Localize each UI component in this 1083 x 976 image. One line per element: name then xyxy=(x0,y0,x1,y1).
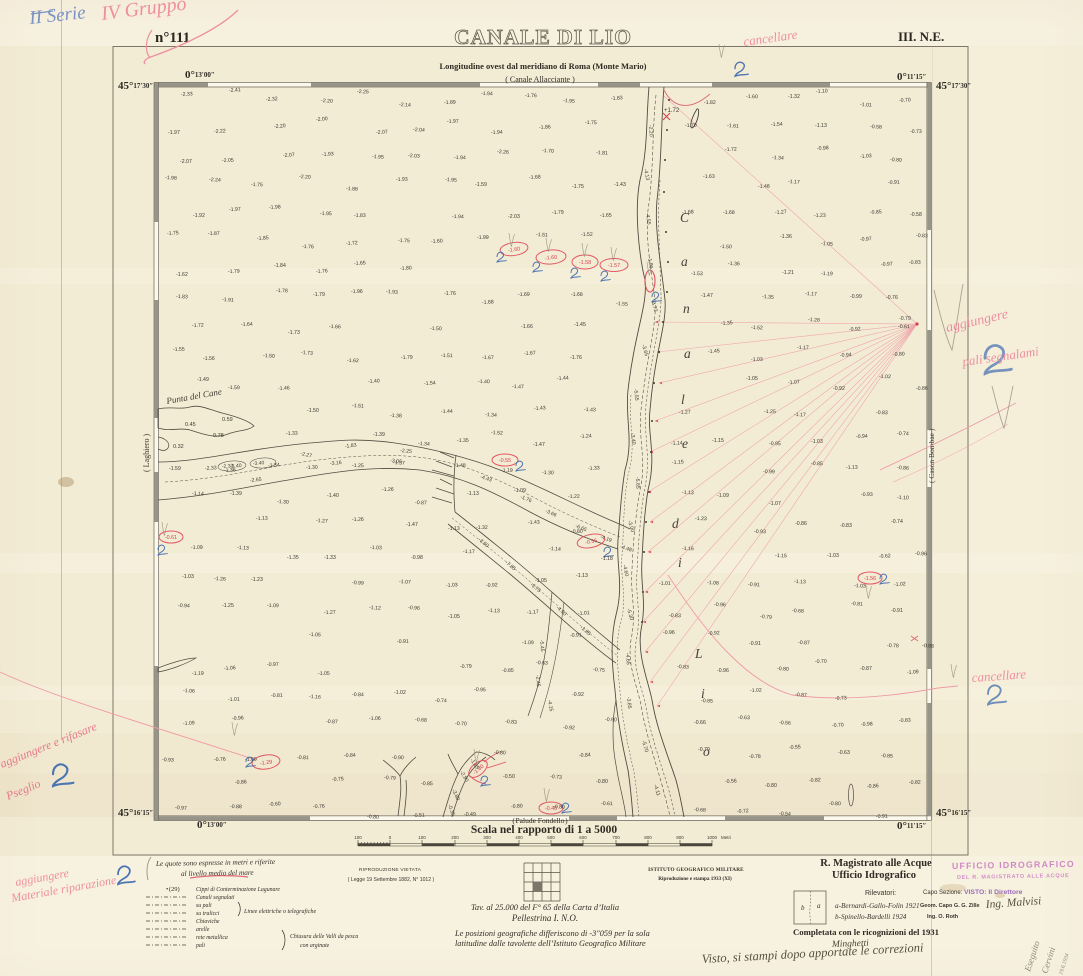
svg-text:-0.80: -0.80 xyxy=(893,351,905,358)
svg-text:-1.29: -1.29 xyxy=(260,759,273,767)
svg-text:-0.81: -0.81 xyxy=(297,755,309,761)
svg-text:-1.95: -1.95 xyxy=(445,177,457,184)
svg-text:-1.05: -1.05 xyxy=(746,376,758,382)
svg-text:-1.02: -1.02 xyxy=(394,690,406,696)
svg-text:0°11′15″: 0°11′15″ xyxy=(897,820,926,832)
svg-text:-1.25: -1.25 xyxy=(352,463,364,469)
svg-text:-1.83: -1.83 xyxy=(176,294,188,300)
svg-text:-0.35: -0.35 xyxy=(446,804,456,817)
svg-text:III. N.E.: III. N.E. xyxy=(898,29,944,44)
svg-text:-2.65: -2.65 xyxy=(250,477,263,484)
svg-text:Longitudine ovest dal meridian: Longitudine ovest dal meridiano di Roma … xyxy=(439,61,646,71)
svg-text:-1.02: -1.02 xyxy=(894,581,906,588)
svg-text:-1.19: -1.19 xyxy=(821,271,833,277)
svg-text:-1.83: -1.83 xyxy=(611,95,623,102)
svg-text:-0.76: -0.76 xyxy=(214,757,226,763)
svg-text:-2.26: -2.26 xyxy=(497,149,509,156)
svg-text:-0.79: -0.79 xyxy=(760,614,772,621)
svg-text:-1.64: -1.64 xyxy=(241,322,253,328)
svg-text:-1.43: -1.43 xyxy=(534,405,546,412)
svg-text:-1.62: -1.62 xyxy=(347,358,359,364)
svg-text:-0.87: -0.87 xyxy=(326,719,338,725)
svg-text:-1.33: -1.33 xyxy=(588,465,600,472)
svg-text:-0.83: -0.83 xyxy=(840,523,852,529)
svg-text:400: 400 xyxy=(515,835,523,840)
svg-text:-0.78: -0.78 xyxy=(887,643,899,649)
svg-text:-1.79: -1.79 xyxy=(313,292,325,298)
svg-text:-1.32: -1.32 xyxy=(788,94,800,100)
svg-text:-0.90: -0.90 xyxy=(392,755,404,761)
svg-text:Cippi di Conterminazione Lagun: Cippi di Conterminazione Lagunare xyxy=(196,887,280,893)
svg-text:-2.14: -2.14 xyxy=(399,102,411,109)
svg-text:-0.97: -0.97 xyxy=(881,261,893,268)
svg-text:-0.85: -0.85 xyxy=(502,668,514,674)
svg-text:-0.82: -0.82 xyxy=(809,777,821,784)
svg-text:-0.96: -0.96 xyxy=(714,602,726,608)
svg-text:-1.89: -1.89 xyxy=(444,100,456,106)
svg-text:-1.47: -1.47 xyxy=(701,293,713,299)
svg-text:0.59: 0.59 xyxy=(222,417,233,423)
svg-text:-0.54: -0.54 xyxy=(779,811,791,818)
svg-text:0°13′00″: 0°13′00″ xyxy=(197,819,227,831)
svg-text:-2.33: -2.33 xyxy=(205,465,217,472)
svg-text:-1.17: -1.17 xyxy=(797,345,809,351)
svg-text:-5.70: -5.70 xyxy=(640,740,649,753)
svg-text:-1.03: -1.03 xyxy=(860,153,872,160)
svg-text:-1.34: -1.34 xyxy=(772,155,784,162)
svg-text:-2.03: -2.03 xyxy=(508,214,520,220)
svg-text:-1.44: -1.44 xyxy=(441,409,453,415)
svg-text:-1.09: -1.09 xyxy=(267,603,279,609)
svg-text:-0.79: -0.79 xyxy=(698,747,710,753)
svg-text:a: a xyxy=(817,902,821,910)
svg-text:-1.33: -1.33 xyxy=(286,431,298,437)
svg-text:-0.79: -0.79 xyxy=(460,664,472,670)
svg-text:-1.13: -1.13 xyxy=(448,526,460,532)
svg-text:-1.80: -1.80 xyxy=(646,256,654,269)
svg-text:-1.82: -1.82 xyxy=(704,100,716,106)
svg-text:-5.45: -5.45 xyxy=(538,640,545,652)
svg-text:e: e xyxy=(682,436,688,451)
svg-text:Ing. O. Roth: Ing. O. Roth xyxy=(927,914,959,920)
svg-text:Chiusura delle Valli da pesca: Chiusura delle Valli da pesca xyxy=(290,934,358,940)
svg-text:Eseguito: Eseguito xyxy=(1022,939,1042,973)
svg-text:-1.07: -1.07 xyxy=(788,379,800,386)
svg-text:-1.43: -1.43 xyxy=(614,182,626,188)
svg-text:-3.66: -3.66 xyxy=(544,508,557,518)
svg-text:-2.24: -2.24 xyxy=(209,177,221,184)
svg-text:200: 200 xyxy=(451,835,459,840)
svg-text:-1.05: -1.05 xyxy=(535,578,547,584)
svg-text:-3.85: -3.85 xyxy=(625,697,632,710)
svg-text:-1.66: -1.66 xyxy=(521,324,533,330)
svg-text:-1.36: -1.36 xyxy=(728,261,740,267)
svg-text:latitudine dalle tavolette del: latitudine dalle tavolette dell’Istituto… xyxy=(455,939,646,948)
svg-text:-1.06: -1.06 xyxy=(183,688,195,695)
svg-text:( Laghiero ): ( Laghiero ) xyxy=(142,433,151,472)
svg-text:-2.27: -2.27 xyxy=(300,451,313,459)
svg-text:-1.13: -1.13 xyxy=(237,545,249,552)
svg-text:-0.92: -0.92 xyxy=(708,630,720,637)
svg-text:-4.55: -4.55 xyxy=(644,213,651,226)
svg-text:-0.96: -0.96 xyxy=(408,605,420,612)
svg-text:-0.81: -0.81 xyxy=(851,601,863,608)
svg-text:1000: 1000 xyxy=(707,835,718,840)
svg-text:-1.27: -1.27 xyxy=(679,409,691,416)
svg-text:-1.08: -1.08 xyxy=(707,580,719,587)
svg-text:-1.94: -1.94 xyxy=(452,214,464,220)
svg-text:-1.17: -1.17 xyxy=(794,412,806,418)
svg-text:-0.90: -0.90 xyxy=(605,717,617,723)
svg-text:-1.88: -1.88 xyxy=(346,186,358,193)
svg-text:-1.13: -1.13 xyxy=(846,465,858,471)
svg-text:-0.85: -0.85 xyxy=(701,698,713,705)
svg-text:-1.23: -1.23 xyxy=(695,516,707,522)
svg-text:-1.97: -1.97 xyxy=(168,130,180,136)
svg-text:-0.84: -0.84 xyxy=(344,753,356,759)
svg-text:-0.88: -0.88 xyxy=(230,804,242,810)
svg-text:-1.95: -1.95 xyxy=(372,154,384,161)
svg-text:-0.83: -0.83 xyxy=(876,410,888,416)
svg-text:b-Spinello-Bardelli 1924: b-Spinello-Bardelli 1924 xyxy=(835,913,907,921)
svg-text:-0.63: -0.63 xyxy=(738,715,750,721)
svg-text:-1.15: -1.15 xyxy=(775,553,787,559)
svg-text:-1.63: -1.63 xyxy=(703,174,715,180)
svg-text:-0.79: -0.79 xyxy=(384,775,396,782)
svg-text:-1.67: -1.67 xyxy=(482,355,494,361)
svg-text:-0.94: -0.94 xyxy=(840,352,852,359)
svg-text:0°11′15″: 0°11′15″ xyxy=(897,71,926,83)
svg-text:-2.20: -2.20 xyxy=(321,98,333,105)
svg-text:-2.07: -2.07 xyxy=(376,129,388,136)
svg-text:rete metallica: rete metallica xyxy=(196,935,228,941)
svg-text:-0.87: -0.87 xyxy=(795,692,807,699)
svg-text:-1.75: -1.75 xyxy=(167,230,179,237)
svg-text:-0.83: -0.83 xyxy=(677,664,689,671)
svg-text:-1.49: -1.49 xyxy=(197,377,209,383)
svg-text:-0.86: -0.86 xyxy=(235,779,247,786)
svg-text:-4.13: -4.13 xyxy=(642,168,650,181)
svg-text:-1.14: -1.14 xyxy=(192,491,204,497)
svg-text:-1.93: -1.93 xyxy=(386,289,398,296)
svg-text:-1.10: -1.10 xyxy=(897,495,909,501)
svg-text:-4.65: -4.65 xyxy=(624,653,631,665)
svg-text:-0.68: -0.68 xyxy=(792,608,804,615)
svg-text:al livello medio del mare: al livello medio del mare xyxy=(181,868,255,878)
svg-text:-0.92: -0.92 xyxy=(563,725,575,731)
svg-text:-1.22: -1.22 xyxy=(568,494,580,500)
svg-text:-0.93: -0.93 xyxy=(754,529,766,535)
svg-text:-1.03: -1.03 xyxy=(827,553,839,559)
svg-text:-1.85: -1.85 xyxy=(257,235,269,242)
svg-text:-0.72: -0.72 xyxy=(737,808,749,815)
svg-text:-1.19: -1.19 xyxy=(192,671,204,677)
svg-text:-1.30: -1.30 xyxy=(277,499,289,506)
svg-text:-1.27: -1.27 xyxy=(316,518,328,525)
svg-text:-1.35: -1.35 xyxy=(457,438,469,444)
svg-text:-0.84: -0.84 xyxy=(352,692,364,698)
svg-text:IV Gruppo: IV Gruppo xyxy=(99,0,188,25)
svg-text:-1.70: -1.70 xyxy=(685,123,697,129)
svg-text:-0.81: -0.81 xyxy=(271,693,283,699)
svg-text:-1.68: -1.68 xyxy=(529,174,541,181)
svg-text:Ing. Malvisi: Ing. Malvisi xyxy=(984,895,1041,911)
svg-text:-1.45: -1.45 xyxy=(574,322,586,328)
svg-text:-0.83: -0.83 xyxy=(899,718,911,724)
svg-text:-0.50: -0.50 xyxy=(503,774,515,780)
svg-text:-1.10: -1.10 xyxy=(816,88,828,95)
svg-text:Scala nel rapporto di 1 a 5000: Scala nel rapporto di 1 a 5000 xyxy=(471,824,618,836)
svg-text:-1.47: -1.47 xyxy=(533,442,545,448)
svg-text:-1.84: -1.84 xyxy=(274,263,286,269)
svg-text:-1.14: -1.14 xyxy=(671,440,683,447)
svg-text:-0.92: -0.92 xyxy=(572,692,584,698)
svg-text:600: 600 xyxy=(579,835,587,840)
svg-text:-0.80: -0.80 xyxy=(890,157,902,164)
svg-text:-1.07: -1.07 xyxy=(399,579,411,586)
svg-text:-1.76: -1.76 xyxy=(316,268,328,275)
svg-text:+1.72: +1.72 xyxy=(664,108,680,114)
svg-text:-0.87: -0.87 xyxy=(415,500,427,506)
svg-text:-1.67: -1.67 xyxy=(524,350,536,357)
svg-text:-0.68: -0.68 xyxy=(415,717,427,724)
svg-text:-1.76: -1.76 xyxy=(444,291,456,297)
svg-text:-0.82: -0.82 xyxy=(909,780,921,786)
svg-text:L: L xyxy=(694,646,703,661)
svg-text:-2.80: -2.80 xyxy=(458,770,469,783)
svg-text:-1.24: -1.24 xyxy=(580,433,592,440)
svg-text:-0.99: -0.99 xyxy=(352,580,364,587)
svg-text:-1.51: -1.51 xyxy=(441,353,453,359)
svg-text:-0.73: -0.73 xyxy=(835,695,847,702)
svg-text:-1.54: -1.54 xyxy=(424,380,436,387)
svg-text:-1.15: -1.15 xyxy=(712,438,724,444)
svg-text:-0.80: -0.80 xyxy=(596,779,608,785)
svg-text:-1.16: -1.16 xyxy=(682,546,694,552)
svg-text:-1.86: -1.86 xyxy=(539,124,551,131)
svg-text:-1.50: -1.50 xyxy=(720,244,732,250)
svg-text:-0.91: -0.91 xyxy=(570,632,582,639)
svg-text:-1.03: -1.03 xyxy=(370,545,382,551)
svg-text:-0.96: -0.96 xyxy=(915,551,927,557)
svg-text:-0.85: -0.85 xyxy=(421,781,433,787)
svg-text:-0.66: -0.66 xyxy=(694,720,706,726)
svg-text:-0.98: -0.98 xyxy=(817,145,829,152)
svg-text:0.78: 0.78 xyxy=(213,433,224,439)
svg-text:Linee elettriche o telegrafich: Linee elettriche o telegrafiche xyxy=(243,908,316,915)
svg-text:-0.70: -0.70 xyxy=(899,97,911,104)
svg-text:Ufficio Idrografico: Ufficio Idrografico xyxy=(832,870,916,881)
svg-text:-1.03: -1.03 xyxy=(182,574,194,580)
svg-text:-1.94: -1.94 xyxy=(491,130,503,136)
svg-text:-1.95: -1.95 xyxy=(563,98,575,105)
svg-text:-0.76: -0.76 xyxy=(313,804,325,810)
svg-text:-2.45: -2.45 xyxy=(534,675,541,687)
svg-text:-0.60: -0.60 xyxy=(269,801,281,808)
svg-text:• (29): • (29) xyxy=(166,886,180,893)
svg-text:-3.60: -3.60 xyxy=(477,537,490,549)
svg-text:0.45: 0.45 xyxy=(185,422,196,428)
svg-text:-1.30: -1.30 xyxy=(542,470,554,476)
svg-text:-0.51: -0.51 xyxy=(413,813,425,819)
svg-text:-0.58: -0.58 xyxy=(870,124,882,131)
svg-text:-1.43: -1.43 xyxy=(528,520,540,526)
svg-text:-1.01: -1.01 xyxy=(578,610,590,617)
svg-text:-0.79: -0.79 xyxy=(899,316,911,322)
svg-text:-0.97: -0.97 xyxy=(267,662,279,668)
svg-text:-1.48: -1.48 xyxy=(454,463,466,469)
svg-text:-0.70: -0.70 xyxy=(832,722,844,729)
svg-text:-4.15: -4.15 xyxy=(546,699,554,712)
svg-text:cancellare: cancellare xyxy=(971,666,1027,685)
svg-text:-0.86: -0.86 xyxy=(795,521,807,527)
svg-text:-1.19: -1.19 xyxy=(501,468,513,474)
svg-text:-1.97: -1.97 xyxy=(447,119,459,125)
svg-text:-1.09: -1.09 xyxy=(907,669,919,676)
svg-text:a-Bernardi-Gallo-Folin 1921: a-Bernardi-Gallo-Folin 1921 xyxy=(835,902,920,910)
svg-text:-1.05: -1.05 xyxy=(821,241,833,248)
svg-text:-0.80: -0.80 xyxy=(511,803,523,810)
svg-text:-0.97: -0.97 xyxy=(175,805,187,812)
svg-text:-0.80: -0.80 xyxy=(777,666,789,673)
svg-text:-2.07: -2.07 xyxy=(180,159,192,165)
svg-text:-1.56: -1.56 xyxy=(203,356,215,362)
svg-text:-1.35: -1.35 xyxy=(762,294,774,301)
svg-text:-5.65: -5.65 xyxy=(634,477,640,489)
svg-text:-1.59: -1.59 xyxy=(169,466,181,472)
svg-text:-1.34: -1.34 xyxy=(485,412,497,419)
svg-text:-1.79: -1.79 xyxy=(552,210,564,216)
svg-text:-1.94: -1.94 xyxy=(454,155,466,161)
svg-text:-1.76: -1.76 xyxy=(302,244,314,250)
svg-text:Geom. Capo G. G. Zille: Geom. Capo G. G. Zille xyxy=(920,903,980,909)
svg-text:-4.72: -4.72 xyxy=(649,300,658,313)
svg-text:Chiaviche: Chiaviche xyxy=(196,919,220,925)
svg-text:-0.98: -0.98 xyxy=(861,721,873,728)
svg-text:-2.20: -2.20 xyxy=(299,174,311,181)
svg-text:-1.13: -1.13 xyxy=(576,573,588,579)
svg-text:-1.98: -1.98 xyxy=(269,204,281,211)
svg-text:-2.41: -2.41 xyxy=(229,87,241,94)
svg-text:-0.88: -0.88 xyxy=(922,643,934,650)
svg-text:-1.46: -1.46 xyxy=(278,385,290,392)
svg-text:-0.96: -0.96 xyxy=(663,630,675,636)
svg-text:-0.96: -0.96 xyxy=(717,668,729,674)
svg-text:-5.55: -5.55 xyxy=(632,389,639,402)
svg-text:-1.56: -1.56 xyxy=(864,576,876,582)
svg-text:-1.79: -1.79 xyxy=(228,269,240,275)
svg-text:-1.25: -1.25 xyxy=(764,409,776,415)
svg-text:-1.58: -1.58 xyxy=(579,260,591,266)
svg-text:-1.15: -1.15 xyxy=(672,459,684,466)
svg-text:-1.40: -1.40 xyxy=(368,378,380,385)
svg-text:-0.97: -0.97 xyxy=(860,236,872,243)
svg-text:Capo Sezione:: Capo Sezione: xyxy=(923,890,963,896)
svg-text:-0.83: -0.83 xyxy=(916,233,928,239)
svg-text:-1.59: -1.59 xyxy=(228,385,240,391)
svg-text:-0.94: -0.94 xyxy=(178,603,190,609)
svg-text:-1.50: -1.50 xyxy=(430,326,442,332)
svg-text:-0.91: -0.91 xyxy=(888,180,900,186)
svg-text:-1.27: -1.27 xyxy=(775,209,787,216)
svg-text:-1.17: -1.17 xyxy=(463,549,475,555)
svg-text:-1.09: -1.09 xyxy=(522,640,534,646)
svg-text:-4.60: -4.60 xyxy=(621,564,629,577)
svg-text:100: 100 xyxy=(354,835,362,840)
svg-text:45°17′30″: 45°17′30″ xyxy=(936,80,971,92)
svg-text:-1.47: -1.47 xyxy=(512,384,524,390)
svg-text:-1.68: -1.68 xyxy=(723,210,735,216)
svg-text:-1.05: -1.05 xyxy=(318,671,330,677)
svg-text:-1.83: -1.83 xyxy=(354,213,366,219)
svg-text:-0.99: -0.99 xyxy=(850,294,862,300)
svg-text:-1.78: -1.78 xyxy=(276,288,288,294)
svg-text:-1.16: -1.16 xyxy=(309,694,321,701)
svg-text:-1.32: -1.32 xyxy=(476,525,488,531)
svg-text:Le quote sono espresse in metr: Le quote sono espresse in metri e riferi… xyxy=(155,857,276,868)
svg-text:-3.06: -3.06 xyxy=(390,458,403,465)
svg-text:-1.75: -1.75 xyxy=(585,120,597,126)
svg-text:-1.14: -1.14 xyxy=(549,546,561,553)
svg-text:-1.12: -1.12 xyxy=(369,605,381,612)
svg-text:-0.56: -0.56 xyxy=(779,720,791,727)
svg-text:-0.56: -0.56 xyxy=(725,778,737,785)
svg-text:-0.92: -0.92 xyxy=(833,386,845,392)
svg-text:cancellare: cancellare xyxy=(742,27,798,49)
svg-text:-3.65: -3.65 xyxy=(640,344,649,357)
svg-text:aggiungere: aggiungere xyxy=(945,307,1010,336)
svg-text:-1.13: -1.13 xyxy=(467,491,479,497)
svg-text:Tav. al 25.000 del F° 65 dell: Tav. al 25.000 del F° 65 della Carta d’I… xyxy=(471,903,619,912)
svg-text:-2.03: -2.03 xyxy=(408,153,420,160)
svg-text:-0.91: -0.91 xyxy=(749,641,761,647)
svg-text:-1.13: -1.13 xyxy=(256,516,268,522)
svg-text:-0.63: -0.63 xyxy=(536,660,548,667)
svg-text:-0.84: -0.84 xyxy=(579,752,591,759)
svg-text:-1.03: -1.03 xyxy=(854,583,866,590)
svg-text:-0.91: -0.91 xyxy=(748,582,760,588)
svg-text:R. Magistrato alle Acque: R. Magistrato alle Acque xyxy=(820,858,932,869)
svg-text:-2.00: -2.00 xyxy=(316,116,328,123)
svg-text:-1.61: -1.61 xyxy=(727,123,739,130)
svg-text:n: n xyxy=(683,301,690,316)
svg-text:-1.09: -1.09 xyxy=(717,493,729,499)
svg-text:-1.09: -1.09 xyxy=(514,488,526,494)
svg-text:500: 500 xyxy=(547,835,555,840)
svg-text:-2.25: -2.25 xyxy=(400,448,412,455)
svg-text:-0.74: -0.74 xyxy=(891,519,903,525)
svg-text:-1.09: -1.09 xyxy=(191,545,203,551)
svg-text:-1.97: -1.97 xyxy=(229,207,241,213)
svg-text:-0.93: -0.93 xyxy=(162,757,174,764)
svg-text:-1.30: -1.30 xyxy=(306,465,318,471)
svg-text:Pellestrina I. N.O.: Pellestrina I. N.O. xyxy=(511,913,578,923)
svg-text:su tralicci: su tralicci xyxy=(196,911,220,917)
svg-text:-1.66: -1.66 xyxy=(329,324,341,330)
svg-text:-1.68: -1.68 xyxy=(571,292,583,298)
svg-text:-1.05: -1.05 xyxy=(309,632,321,638)
svg-text:-2.32: -2.32 xyxy=(266,96,278,103)
svg-text:-1.40: -1.40 xyxy=(327,493,339,499)
svg-text:-1.06: -1.06 xyxy=(224,665,236,672)
svg-text:-2.05: -2.05 xyxy=(222,158,234,164)
svg-text:-0.85: -0.85 xyxy=(811,461,823,467)
svg-text:-1.21: -1.21 xyxy=(782,270,794,276)
svg-text:-1.45: -1.45 xyxy=(708,348,720,355)
svg-text:-0.83: -0.83 xyxy=(505,719,517,726)
svg-text:-1.36: -1.36 xyxy=(780,234,792,240)
svg-text:-1.01: -1.01 xyxy=(860,102,872,109)
